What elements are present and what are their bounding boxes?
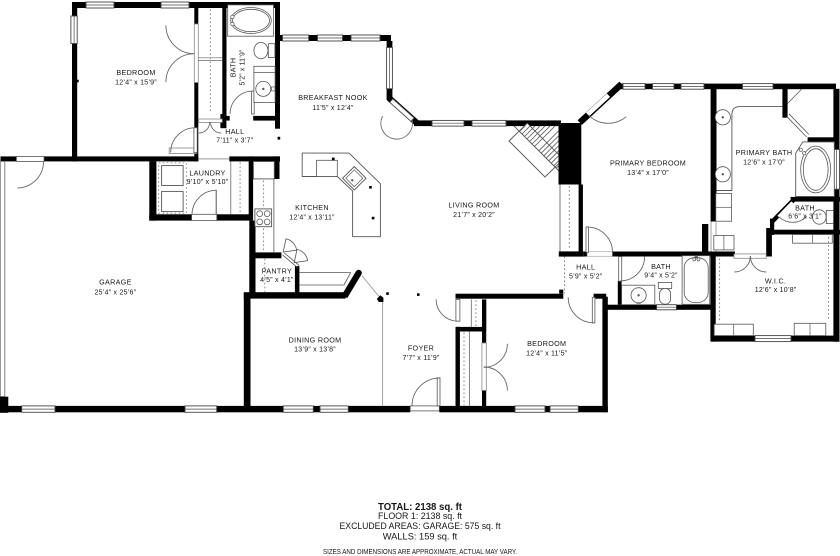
svg-text:FLOOR 1: 2138 sq. ft: FLOOR 1: 2138 sq. ft — [378, 511, 462, 521]
svg-text:12’6” x 10’8”: 12’6” x 10’8” — [755, 287, 797, 294]
svg-text:9’4” x 5’2”: 9’4” x 5’2” — [644, 272, 678, 279]
svg-text:5’2” x 11’9”: 5’2” x 11’9” — [240, 49, 247, 85]
svg-text:HALL: HALL — [225, 127, 244, 136]
svg-text:WALLS: 159 sq. ft: WALLS: 159 sq. ft — [383, 531, 458, 541]
svg-text:25’4” x 25’6”: 25’4” x 25’6” — [95, 290, 137, 297]
svg-text:13’4” x 17’0”: 13’4” x 17’0” — [627, 170, 669, 177]
svg-text:EXCLUDED AREAS: GARAGE: 575 sq: EXCLUDED AREAS: GARAGE: 575 sq. ft — [340, 521, 501, 531]
svg-text:BEDROOM: BEDROOM — [116, 68, 155, 77]
svg-text:BATH: BATH — [795, 204, 815, 213]
svg-text:6’6” x 3’1”: 6’6” x 3’1” — [788, 214, 822, 221]
svg-text:HALL: HALL — [576, 262, 595, 271]
svg-text:PANTRY: PANTRY — [262, 267, 292, 276]
svg-text:FOYER: FOYER — [408, 344, 434, 353]
svg-text:12’4” x 13’11”: 12’4” x 13’11” — [289, 215, 335, 222]
svg-text:BATH: BATH — [229, 58, 238, 77]
svg-text:9’10” x 5’10”: 9’10” x 5’10” — [187, 179, 229, 186]
svg-text:PRIMARY BEDROOM: PRIMARY BEDROOM — [610, 159, 686, 168]
svg-text:BREAKFAST NOOK: BREAKFAST NOOK — [298, 93, 368, 102]
svg-text:5’9” x 5’2”: 5’9” x 5’2” — [569, 273, 603, 280]
svg-text:BATH: BATH — [651, 262, 671, 271]
svg-text:21’7” x 20’2”: 21’7” x 20’2” — [453, 212, 495, 219]
svg-text:11’5” x 12’4”: 11’5” x 12’4” — [312, 105, 354, 112]
svg-text:SIZES AND DIMENSIONS ARE APPRO: SIZES AND DIMENSIONS ARE APPROXIMATE, AC… — [323, 547, 517, 556]
svg-text:7’7” x 11’9”: 7’7” x 11’9” — [402, 355, 440, 362]
svg-text:KITCHEN: KITCHEN — [295, 203, 329, 212]
svg-text:BEDROOM: BEDROOM — [527, 339, 566, 348]
svg-text:PRIMARY BATH: PRIMARY BATH — [736, 148, 793, 157]
svg-text:GARAGE: GARAGE — [99, 278, 132, 287]
svg-text:13’9” x 13’8”: 13’9” x 13’8” — [294, 346, 336, 353]
svg-text:7’11” x 3’7”: 7’11” x 3’7” — [216, 137, 254, 144]
svg-text:12’6” x 17’0”: 12’6” x 17’0” — [743, 160, 785, 167]
svg-text:DINING ROOM: DINING ROOM — [289, 336, 342, 345]
svg-text:12’4” x 11’5”: 12’4” x 11’5” — [526, 351, 568, 358]
svg-text:12’4” x 15’9”: 12’4” x 15’9” — [115, 80, 157, 87]
svg-text:W.I.C.: W.I.C. — [765, 276, 786, 285]
svg-text:4’5” x 4’1”: 4’5” x 4’1” — [260, 277, 294, 284]
svg-text:LIVING ROOM: LIVING ROOM — [448, 201, 499, 210]
svg-text:LAUNDRY: LAUNDRY — [189, 168, 225, 177]
